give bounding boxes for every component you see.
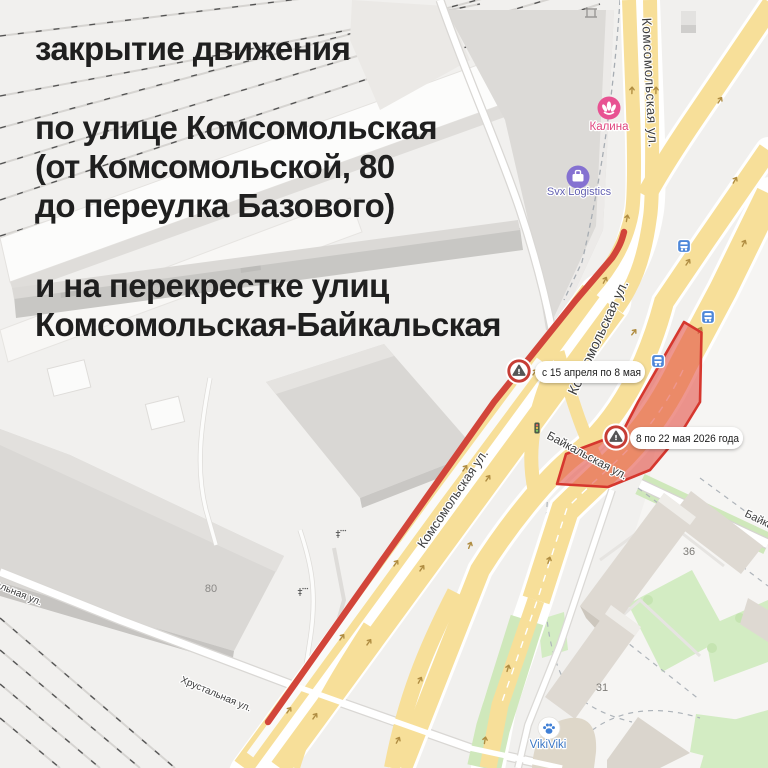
svg-text:Svx Logistics: Svx Logistics bbox=[547, 186, 612, 198]
svg-text:закрытие движения: закрытие движения bbox=[35, 30, 350, 67]
svg-text:36: 36 bbox=[683, 546, 695, 558]
svg-text:до переулка Базового): до переулка Базового) bbox=[35, 187, 395, 224]
svg-text:и на перекрестке улиц: и на перекрестке улиц bbox=[35, 267, 389, 304]
svg-text:с 15 апреля по 8 мая: с 15 апреля по 8 мая bbox=[542, 367, 641, 379]
svg-text:8 по 22 мая 2026 года: 8 по 22 мая 2026 года bbox=[636, 433, 740, 445]
svg-text:(от Комсомольской, 80: (от Комсомольской, 80 bbox=[35, 148, 394, 185]
svg-text:80: 80 bbox=[205, 583, 217, 595]
svg-text:Калина: Калина bbox=[590, 121, 630, 133]
svg-text:VikiViki: VikiViki bbox=[530, 739, 567, 751]
svg-text:по улице Комсомольская: по улице Комсомольская bbox=[35, 109, 437, 146]
svg-text:Комсомольская-Байкальская: Комсомольская-Байкальская bbox=[35, 306, 501, 343]
svg-text:31: 31 bbox=[596, 682, 608, 694]
